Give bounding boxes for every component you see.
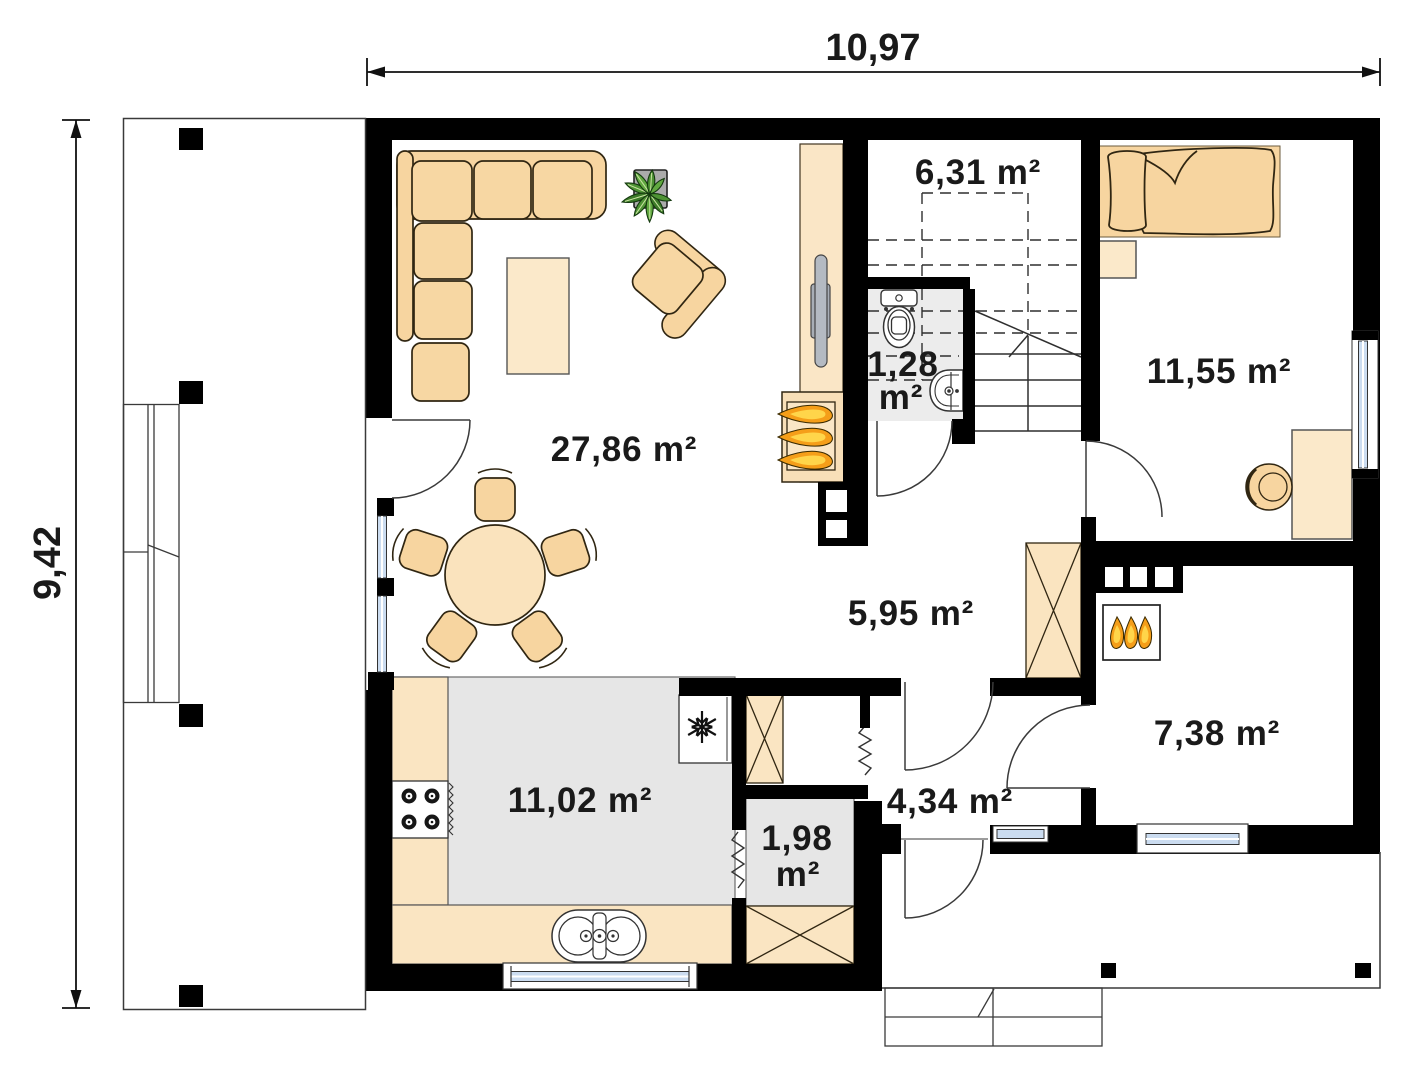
svg-text:5,95 m²: 5,95 m² xyxy=(848,594,974,633)
svg-text:10,97: 10,97 xyxy=(825,27,920,69)
svg-text:1,98: 1,98 xyxy=(761,819,832,858)
svg-text:11,02 m²: 11,02 m² xyxy=(508,781,653,820)
svg-text:4,34 m²: 4,34 m² xyxy=(887,782,1013,821)
svg-text:27,86 m²: 27,86 m² xyxy=(551,430,698,469)
svg-text:9,42: 9,42 xyxy=(27,526,69,600)
svg-text:6,31 m²: 6,31 m² xyxy=(915,153,1041,192)
svg-text:m²: m² xyxy=(776,855,820,894)
svg-text:7,38 m²: 7,38 m² xyxy=(1154,714,1280,753)
svg-text:11,55 m²: 11,55 m² xyxy=(1147,352,1292,391)
svg-text:m²: m² xyxy=(879,378,923,417)
